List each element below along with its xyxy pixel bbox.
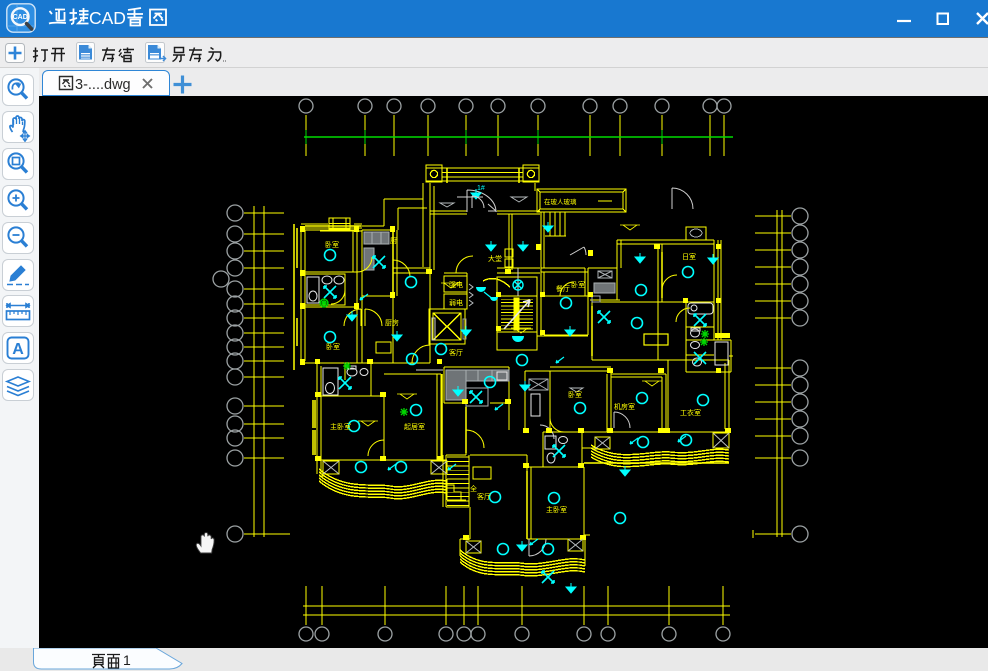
svg-text:CAD: CAD [13,14,28,21]
svg-text:机房室: 机房室 [614,402,635,411]
svg-text:日室: 日室 [682,252,696,261]
svg-text:主卧室: 主卧室 [546,505,567,514]
svg-text:卧室: 卧室 [326,342,340,351]
svg-text:主卧室: 主卧室 [330,422,351,431]
svg-text:CAD: CAD [89,8,126,28]
svg-text:客厅: 客厅 [477,492,491,501]
svg-text:3-....dwg: 3-....dwg [75,77,131,92]
svg-text:卧室: 卧室 [325,240,339,249]
svg-text:卧室: 卧室 [568,390,582,399]
svg-text:餐厅: 餐厅 [556,284,570,293]
svg-text:弱电: 弱电 [449,298,463,307]
svg-text:厨房: 厨房 [385,318,399,327]
svg-text:客厅: 客厅 [449,348,463,357]
svg-text:A: A [12,341,24,358]
svg-text:大堂: 大堂 [488,254,502,263]
svg-text:起居室: 起居室 [404,422,425,431]
svg-text:1#: 1# [477,185,485,192]
svg-text:1: 1 [123,652,131,668]
svg-text:工衣室: 工衣室 [680,408,701,417]
svg-text:卧室: 卧室 [571,280,585,289]
svg-text:全: 全 [470,484,477,493]
svg-text:在玻人玻璃: 在玻人玻璃 [544,197,577,206]
